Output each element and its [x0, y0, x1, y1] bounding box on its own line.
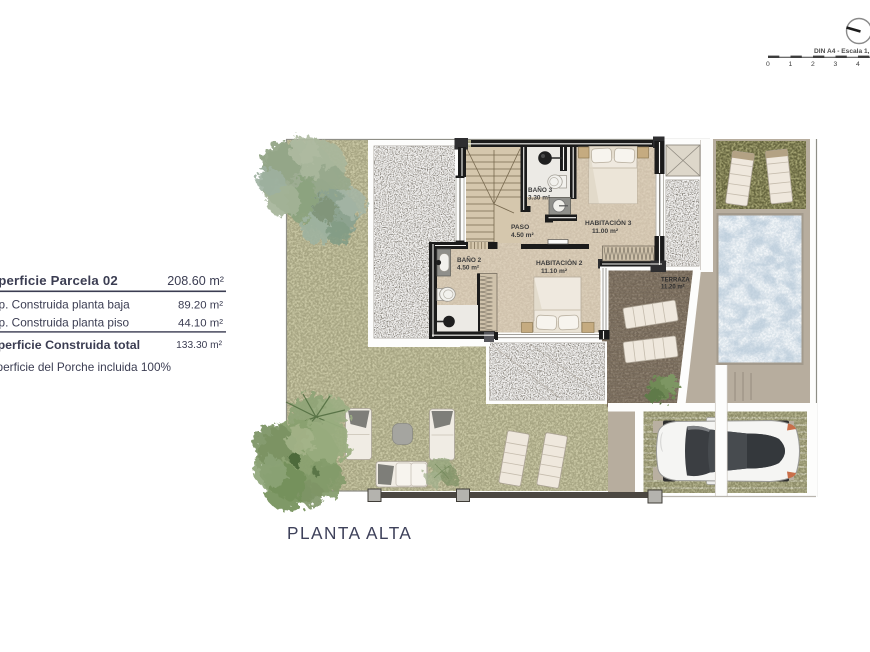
svg-text:PASO: PASO: [511, 224, 529, 231]
svg-text:DIN A4 - Escala 1,: DIN A4 - Escala 1,: [814, 48, 870, 55]
svg-text:11.20 m²: 11.20 m²: [661, 284, 685, 291]
svg-text:133.30 m²: 133.30 m²: [176, 340, 222, 351]
svg-text:up. Construida planta baja: up. Construida planta baja: [0, 298, 130, 312]
svg-text:1: 1: [789, 61, 793, 68]
svg-text:44.10 m²: 44.10 m²: [178, 318, 223, 330]
svg-text:uperficie Parcela 02: uperficie Parcela 02: [0, 273, 118, 288]
svg-text:4: 4: [856, 61, 860, 68]
svg-text:2: 2: [811, 61, 815, 68]
svg-text:4.50 m²: 4.50 m²: [511, 232, 535, 239]
svg-text:4.50 m²: 4.50 m²: [457, 265, 479, 272]
svg-text:uperficie Construida total: uperficie Construida total: [0, 338, 140, 352]
svg-text:208.60 m²: 208.60 m²: [167, 274, 224, 288]
svg-text:BAÑO 2: BAÑO 2: [457, 255, 482, 264]
svg-text:up. Construida planta piso: up. Construida planta piso: [0, 316, 130, 330]
svg-text:11.10 m²: 11.10 m²: [541, 268, 568, 275]
svg-text:PLANTA ALTA: PLANTA ALTA: [287, 523, 412, 543]
svg-text:HABITACIÓN 2: HABITACIÓN 2: [536, 258, 583, 267]
svg-text:11.00 m²: 11.00 m²: [592, 228, 619, 235]
svg-text:3.30 m²: 3.30 m²: [528, 195, 550, 202]
svg-text:BAÑO 3: BAÑO 3: [528, 185, 553, 194]
svg-text:uperficie del Porche incluida: uperficie del Porche incluida 100%: [0, 360, 172, 374]
svg-text:0: 0: [766, 61, 770, 68]
svg-text:HABITACIÓN 3: HABITACIÓN 3: [585, 218, 632, 227]
svg-text:TERRAZA: TERRAZA: [661, 278, 690, 284]
svg-text:89.20 m²: 89.20 m²: [178, 300, 223, 312]
svg-text:3: 3: [834, 61, 838, 68]
